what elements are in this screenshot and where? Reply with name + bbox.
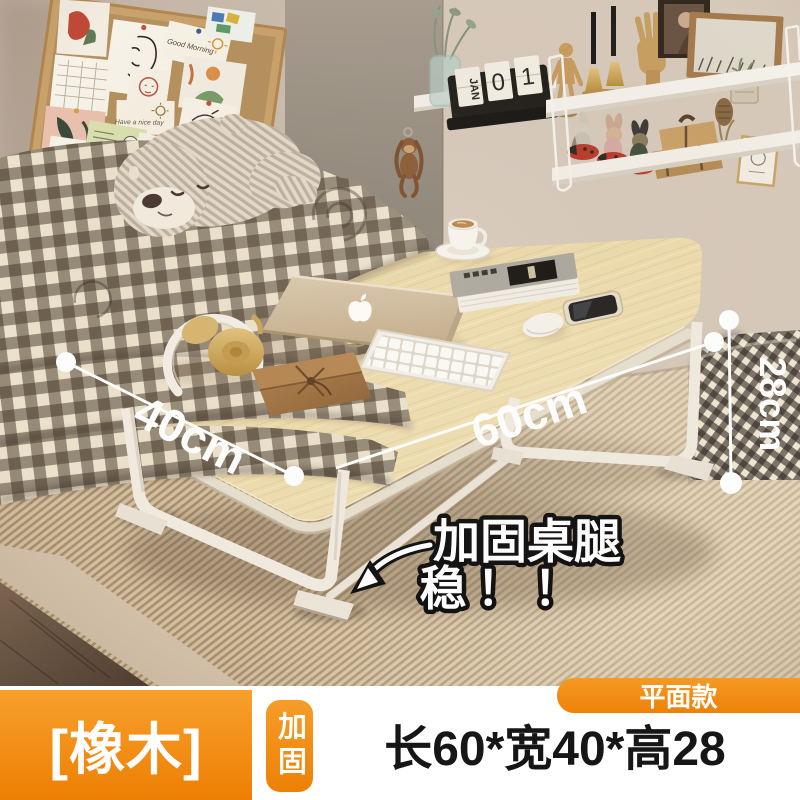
product-image: Good Morning Have a nice day (0, 0, 800, 800)
callout-text-line1: 加固桌腿 (433, 515, 621, 568)
style-badge: 平面款 (557, 678, 800, 713)
width-dot-start (56, 352, 76, 372)
callout-text-line2: 稳！！ (420, 562, 591, 615)
footer-bar: [橡木] 加固 长60*宽40*高28 平面款 (0, 686, 800, 800)
material-badge: [橡木] (0, 690, 252, 800)
height-dot-top (719, 310, 739, 330)
reinforced-badge: 加固 (266, 700, 313, 792)
nice-day-note-text: Have a nice day (115, 119, 164, 127)
length-dot (704, 332, 724, 352)
card-red-art (56, 0, 110, 57)
card-calendar (49, 54, 113, 116)
height-label: 28cm (752, 357, 793, 452)
size-text: 长60*宽40*高28 (322, 704, 788, 784)
height-dot-bottom (720, 472, 742, 494)
height-line (729, 320, 731, 482)
width-dot-end (284, 466, 304, 486)
photo-scene: Good Morning Have a nice day (0, 0, 800, 687)
material-label: [橡木] (49, 705, 202, 786)
